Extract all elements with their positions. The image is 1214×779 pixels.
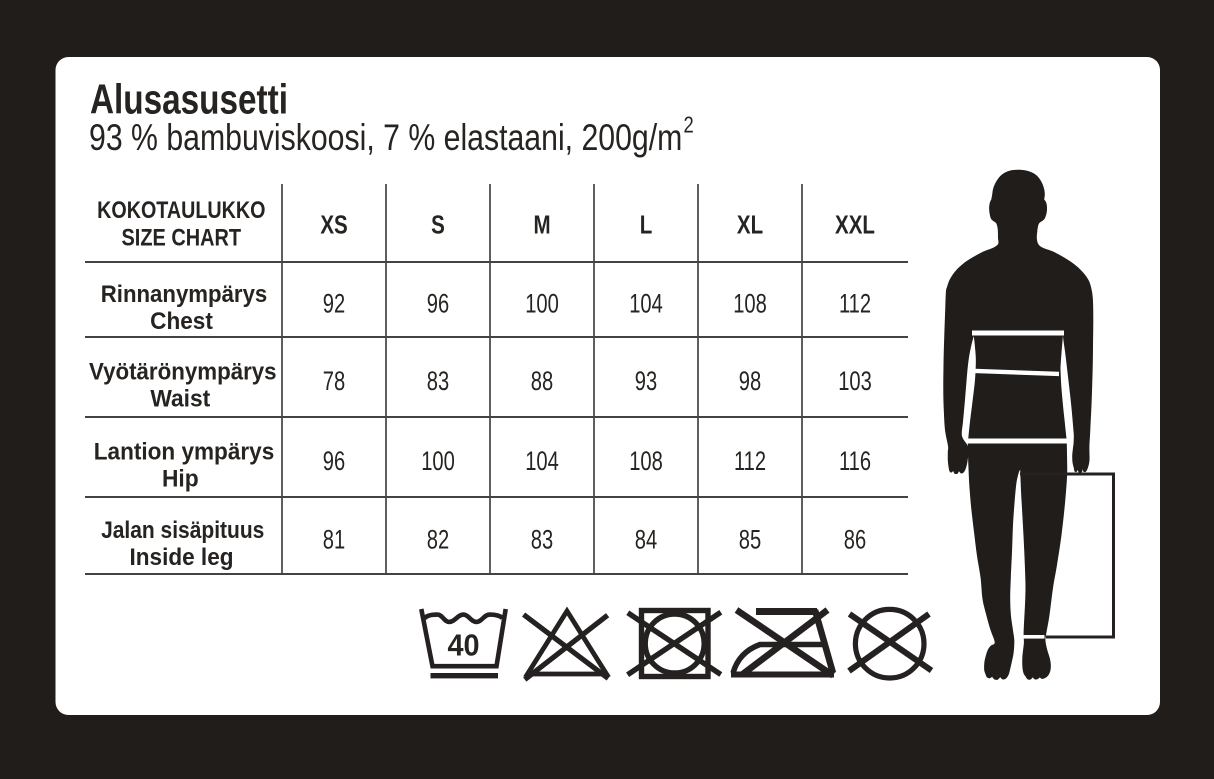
svg-text:108: 108 [629, 446, 663, 475]
svg-text:84: 84 [635, 525, 657, 554]
svg-text:Hip: Hip [162, 465, 199, 492]
svg-text:XL: XL [737, 210, 763, 239]
svg-text:Vyötärönympärys: Vyötärönympärys [89, 358, 277, 385]
svg-text:92: 92 [323, 289, 345, 318]
svg-text:96: 96 [427, 289, 449, 318]
svg-text:83: 83 [427, 366, 449, 395]
svg-text:Waist: Waist [150, 385, 210, 412]
svg-text:98: 98 [739, 366, 761, 395]
svg-text:93 % bambuviskoosi, 7 % elasta: 93 % bambuviskoosi, 7 % elastaani, 200g/… [89, 117, 682, 159]
svg-text:M: M [533, 210, 550, 239]
svg-text:Rinnanympärys: Rinnanympärys [101, 280, 268, 307]
svg-text:112: 112 [839, 289, 871, 318]
svg-text:100: 100 [421, 446, 455, 475]
svg-text:83: 83 [531, 525, 553, 554]
svg-text:81: 81 [323, 525, 345, 554]
svg-text:Jalan sisäpituus: Jalan sisäpituus [101, 517, 264, 544]
svg-text:XXL: XXL [835, 210, 875, 239]
svg-text:96: 96 [323, 446, 345, 475]
svg-text:112: 112 [734, 446, 766, 475]
svg-text:86: 86 [844, 525, 866, 554]
svg-text:100: 100 [525, 289, 559, 318]
svg-text:104: 104 [525, 446, 559, 475]
svg-text:116: 116 [839, 446, 871, 475]
svg-text:S: S [431, 210, 445, 239]
svg-text:XS: XS [320, 210, 347, 239]
svg-text:82: 82 [427, 525, 449, 554]
svg-text:85: 85 [739, 525, 761, 554]
svg-text:Lantion ympärys: Lantion ympärys [94, 438, 274, 465]
svg-text:108: 108 [733, 289, 767, 318]
svg-text:40: 40 [447, 629, 479, 663]
svg-text:88: 88 [531, 366, 553, 395]
svg-text:L: L [640, 210, 653, 239]
svg-text:103: 103 [838, 366, 872, 395]
svg-text:104: 104 [629, 289, 663, 318]
svg-text:Chest: Chest [150, 307, 213, 334]
svg-text:78: 78 [323, 366, 345, 395]
svg-text:SIZE CHART: SIZE CHART [122, 224, 242, 251]
svg-text:93: 93 [635, 366, 657, 395]
svg-text:KOKOTAULUKKO: KOKOTAULUKKO [97, 196, 265, 223]
svg-text:2: 2 [684, 113, 694, 138]
svg-text:Inside leg: Inside leg [129, 543, 233, 570]
